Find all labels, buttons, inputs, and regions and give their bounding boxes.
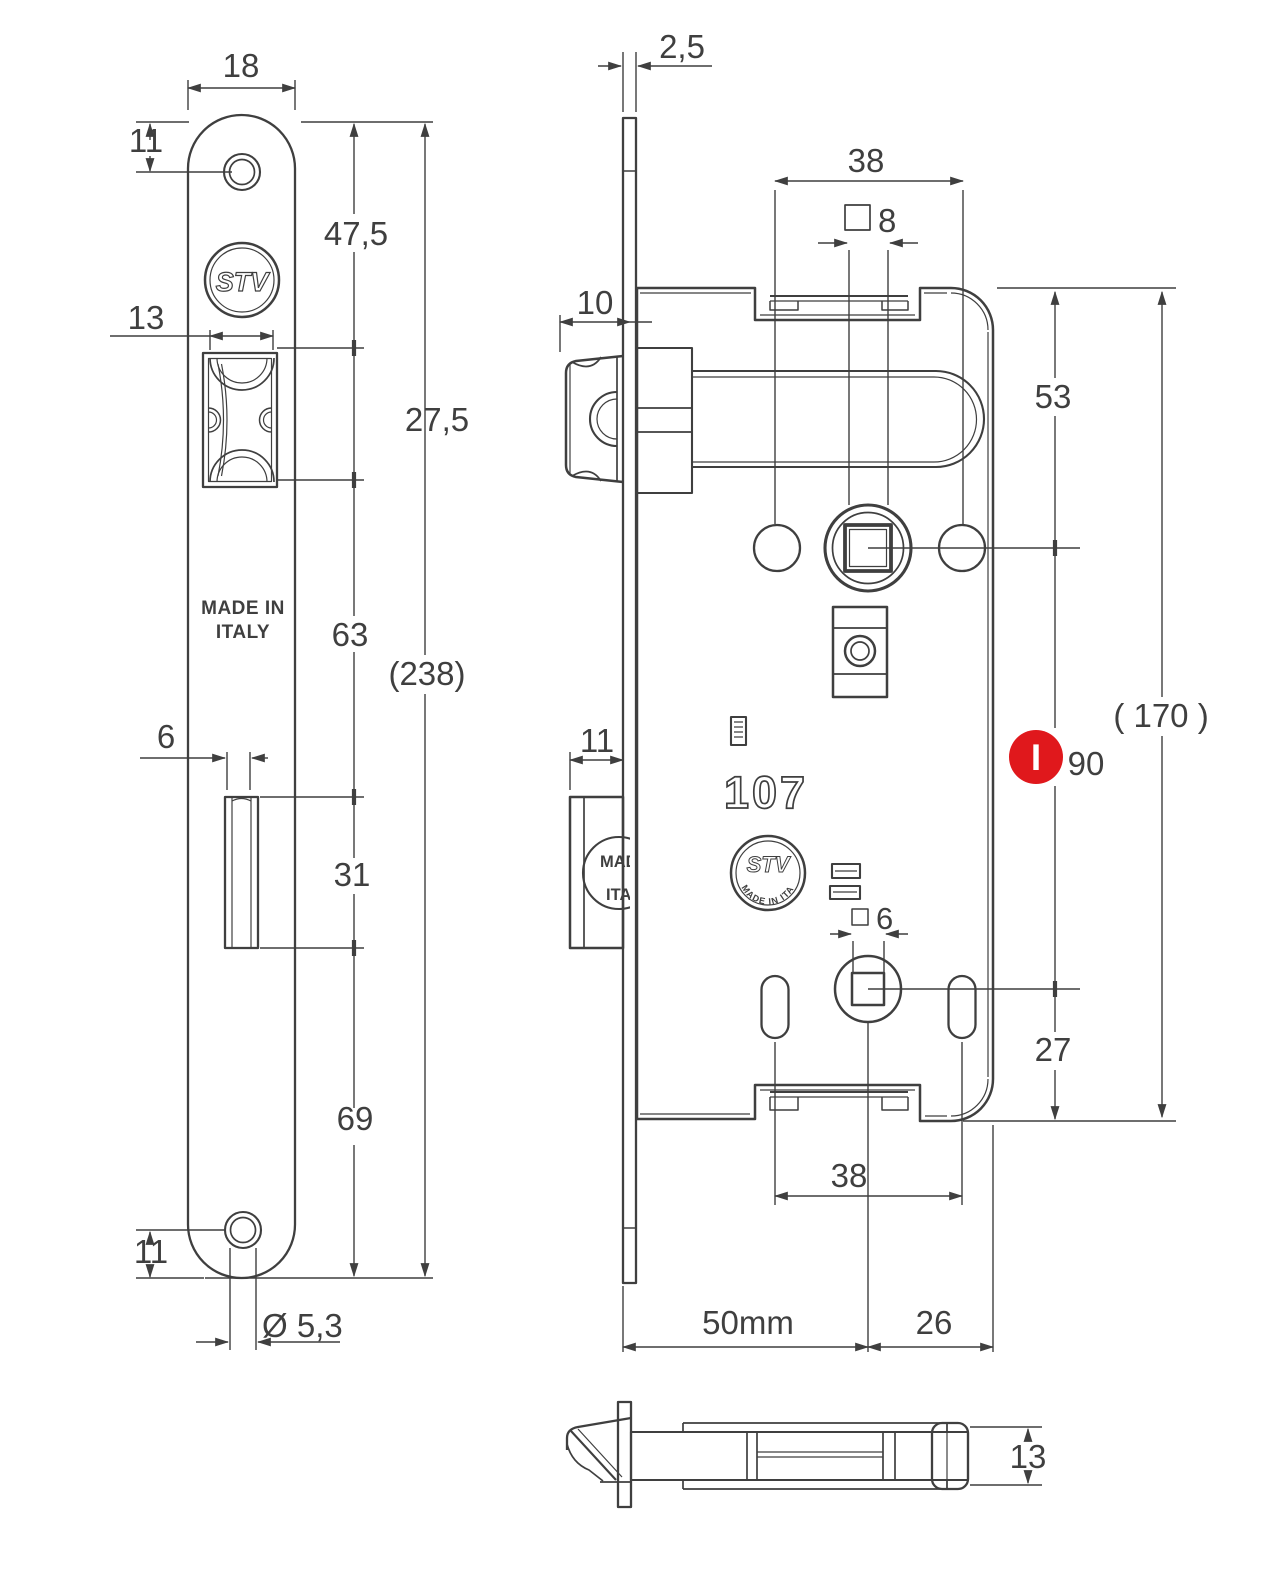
- dim-latch-width-label: 13: [128, 299, 165, 336]
- dim-latch-height-label: 27,5: [405, 401, 469, 438]
- dim-latch-to-bolt-label: 63: [332, 616, 369, 653]
- dim-latch-protrusion-label: 10: [577, 284, 614, 321]
- latch-bolt-side: [566, 356, 623, 482]
- slot-hole-left: [762, 976, 789, 1038]
- slot-hole-right: [949, 976, 976, 1038]
- lock-technical-drawing: STV MADE IN ITALY: [0, 0, 1276, 1578]
- dim-top-to-handle-label: 53: [1035, 378, 1072, 415]
- dim-bolt-width-label: 6: [157, 718, 175, 755]
- dim-bolt-height-label: 31: [334, 856, 371, 893]
- callout-marker: I: [1009, 730, 1063, 784]
- dim-backset-label: 50mm: [702, 1304, 794, 1341]
- stv-logo-front-text: STV: [216, 267, 271, 297]
- front-view-dimensions: 18 11 47,5 13 27,5: [110, 47, 469, 1350]
- faceplate-side: [623, 118, 636, 1283]
- dim-handle-to-wc-label: 90: [1068, 745, 1105, 782]
- square-symbol-8: [845, 205, 870, 230]
- dim-bolt-thickness-label: 11: [580, 722, 614, 759]
- stv-logo-side: STV MADE IN ITALY: [0, 0, 805, 910]
- dim-top-screw-label: 11: [129, 122, 163, 159]
- dim-handle-to-back-label: 26: [916, 1304, 953, 1341]
- technical-drawing-page: STV MADE IN ITALY: [0, 0, 1276, 1578]
- case-bottom-view: [631, 1423, 968, 1489]
- latch-spring-housing: [692, 371, 984, 467]
- deadbolt-side: MADE IN ITALY: [570, 797, 670, 948]
- front-view: STV MADE IN ITALY: [110, 47, 469, 1350]
- bottom-view-dimensions: 13: [970, 1427, 1046, 1485]
- side-view: 107 STV MADE IN ITALY MADE IN ITALY: [0, 0, 1209, 1352]
- square-symbol-6: [852, 909, 868, 925]
- dim-bolt-to-bottom-label: 69: [337, 1100, 374, 1137]
- dim-wc-square-label: 6: [876, 901, 893, 936]
- stamp-mark-small: [731, 717, 746, 745]
- dim-width-label: 18: [223, 47, 260, 84]
- dim-overall-height-label: (238): [388, 655, 465, 692]
- deadbolt-stamp-line1: MADE IN: [600, 853, 670, 871]
- latch-body: [637, 348, 692, 493]
- dim-handle-square-label: 8: [878, 202, 896, 239]
- model-number-stamp: 107: [724, 767, 808, 818]
- stv-logo-side-text: STV: [747, 852, 792, 877]
- stamp-rects: [830, 864, 860, 899]
- dim-screw-spacing-top-label: 38: [848, 142, 885, 179]
- marker-badge-label: I: [1031, 737, 1041, 778]
- dim-bottom-screw-label: 11: [134, 1233, 168, 1270]
- latch-opening-front: [203, 353, 277, 487]
- made-in-italy-line1: MADE IN: [201, 598, 285, 619]
- made-in-italy-line2: ITALY: [216, 622, 270, 643]
- dim-case-thickness-label: 13: [1010, 1438, 1047, 1475]
- bottom-screw-hole: [225, 1212, 261, 1248]
- deadbolt-stamp-line2: ITALY: [606, 886, 651, 904]
- screw-post-left: [754, 525, 800, 571]
- latch-tip-bottom-view: [567, 1418, 631, 1482]
- stv-logo-ring-text: MADE IN ITALY: [0, 0, 796, 906]
- svg-text:MADE IN ITALY: MADE IN ITALY: [0, 0, 796, 906]
- dim-overall-height-side-label: ( 170 ): [1113, 697, 1208, 734]
- deadbolt-opening-front: [225, 797, 258, 948]
- spring-catch: [833, 607, 887, 697]
- dim-screw-spacing-bottom-label: 38: [831, 1157, 868, 1194]
- side-view-dimensions: 2,5 38 8 10 53 11: [560, 28, 1209, 1352]
- bottom-view: 13: [567, 1402, 1046, 1507]
- dim-screw-dia-label: Ø 5,3: [262, 1307, 343, 1344]
- lock-case-outline: [637, 288, 993, 1121]
- dim-wc-to-bottom-label: 27: [1035, 1031, 1072, 1068]
- dim-top-to-latch-label: 47,5: [324, 215, 388, 252]
- dim-faceplate-thickness-label: 2,5: [659, 28, 705, 65]
- deadbolt-stamp: MADE IN ITALY: [583, 837, 670, 909]
- stv-logo-front: STV: [205, 243, 279, 317]
